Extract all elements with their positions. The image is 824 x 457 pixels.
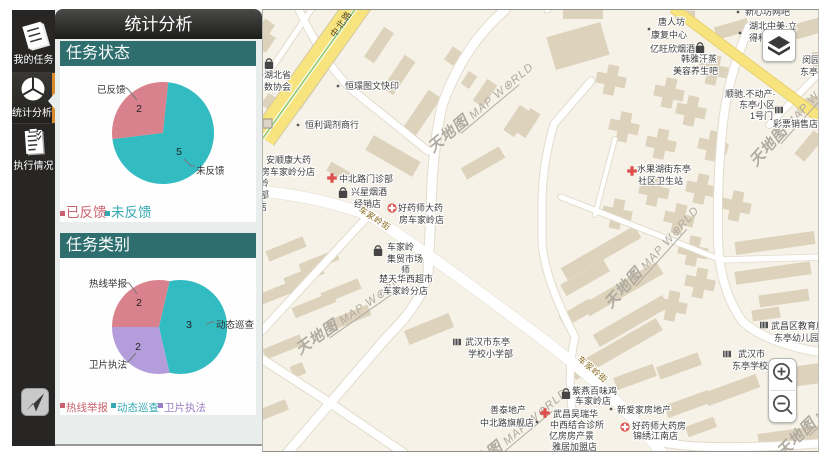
svg-text:顺驰.不动产·: 顺驰.不动产· xyxy=(725,88,776,99)
svg-text:武汉市东亭: 武汉市东亭 xyxy=(465,336,510,347)
svg-text:中北路旗舰店: 中北路旗舰店 xyxy=(480,417,534,428)
svg-text:唐人坊: 唐人坊 xyxy=(658,16,685,27)
svg-text:闵园医: 闵园医 xyxy=(802,54,818,65)
svg-text:新心坊网吧: 新心坊网吧 xyxy=(745,10,790,17)
svg-text:店: 店 xyxy=(263,201,267,212)
svg-text:武昌吴瑞华: 武昌吴瑞华 xyxy=(553,408,598,419)
svg-text:好药师大药: 好药师大药 xyxy=(398,202,443,213)
svg-text:部: 部 xyxy=(263,189,269,200)
svg-text:中北路门诊部: 中北路门诊部 xyxy=(339,173,393,184)
svg-text:学校小学部: 学校小学部 xyxy=(468,348,513,359)
svg-text:房车家岭分店: 房车家岭分店 xyxy=(263,166,315,177)
svg-text:动态巡查: 动态巡查 xyxy=(117,401,159,414)
svg-text:未反馈: 未反馈 xyxy=(196,165,225,177)
svg-text:1号门: 1号门 xyxy=(750,110,773,121)
svg-text:已反馈: 已反馈 xyxy=(97,84,126,96)
svg-text:亿房房产景: 亿房房产景 xyxy=(549,430,594,441)
svg-text:5: 5 xyxy=(176,146,182,158)
svg-text:中西结合诊所: 中西结合诊所 xyxy=(550,419,604,430)
svg-text:亿旺欣烟酒: 亿旺欣烟酒 xyxy=(650,43,695,54)
svg-text:恒利调剂商行: 恒利调剂商行 xyxy=(305,119,359,130)
svg-text:集贸市场: 集贸市场 xyxy=(387,253,423,264)
svg-text:紫燕百味鸡: 紫燕百味鸡 xyxy=(572,385,617,396)
svg-text:韩雅汗蒸: 韩雅汗蒸 xyxy=(681,53,717,64)
svg-text:康复中心: 康复中心 xyxy=(651,29,687,40)
svg-text:车家岭分店: 车家岭分店 xyxy=(383,285,428,296)
svg-text:楚天华西超市: 楚天华西超市 xyxy=(379,273,433,284)
svg-text:恒璟图文快印: 恒璟图文快印 xyxy=(345,80,399,91)
svg-text:东亭学校: 东亭学校 xyxy=(732,360,768,371)
svg-text:热线举报: 热线举报 xyxy=(89,278,128,290)
svg-text:岭: 岭 xyxy=(263,177,269,188)
svg-text:雅居加盟店: 雅居加盟店 xyxy=(552,441,597,451)
svg-text:武昌区教育局: 武昌区教育局 xyxy=(771,320,818,331)
svg-text:善泰地产: 善泰地产 xyxy=(490,404,526,415)
svg-text:美容养生吧: 美容养生吧 xyxy=(673,65,718,76)
svg-text:2: 2 xyxy=(135,341,141,353)
svg-text:未反馈: 未反馈 xyxy=(111,205,152,220)
svg-text:车家岭店: 车家岭店 xyxy=(575,395,611,406)
svg-text:房车家岭店: 房车家岭店 xyxy=(399,214,444,225)
svg-text:社区卫生站: 社区卫生站 xyxy=(638,175,683,186)
svg-text:湖北省: 湖北省 xyxy=(264,69,291,80)
svg-text:兴星烟酒: 兴星烟酒 xyxy=(351,186,387,197)
svg-text:东亭小区: 东亭小区 xyxy=(739,99,775,110)
svg-text:动态巡查: 动态巡查 xyxy=(216,319,255,331)
svg-text:数协会: 数协会 xyxy=(264,81,291,92)
svg-text:卫片执法: 卫片执法 xyxy=(164,401,206,414)
svg-text:好药师大药房: 好药师大药房 xyxy=(632,420,686,431)
svg-text:新爱家房地产: 新爱家房地产 xyxy=(617,404,671,415)
svg-text:热线举报: 热线举报 xyxy=(66,401,108,414)
svg-text:2: 2 xyxy=(136,297,142,309)
svg-text:车家岭: 车家岭 xyxy=(387,241,414,252)
svg-text:东亭幼儿园: 东亭幼儿园 xyxy=(774,332,818,343)
svg-text:已反馈: 已反馈 xyxy=(66,205,107,220)
svg-text:武汉市: 武汉市 xyxy=(738,348,765,359)
svg-text:卫片执法: 卫片执法 xyxy=(89,359,127,371)
svg-text:锦绣江南店: 锦绣江南店 xyxy=(633,430,678,441)
svg-text:2: 2 xyxy=(136,103,142,115)
svg-text:3: 3 xyxy=(186,319,192,331)
svg-text:安顺康大药: 安顺康大药 xyxy=(266,154,311,165)
svg-text:彩票销售店: 彩票销售店 xyxy=(773,118,818,129)
svg-text:水果湖街东亭: 水果湖街东亭 xyxy=(637,163,691,174)
svg-text:东亭门: 东亭门 xyxy=(800,66,818,77)
